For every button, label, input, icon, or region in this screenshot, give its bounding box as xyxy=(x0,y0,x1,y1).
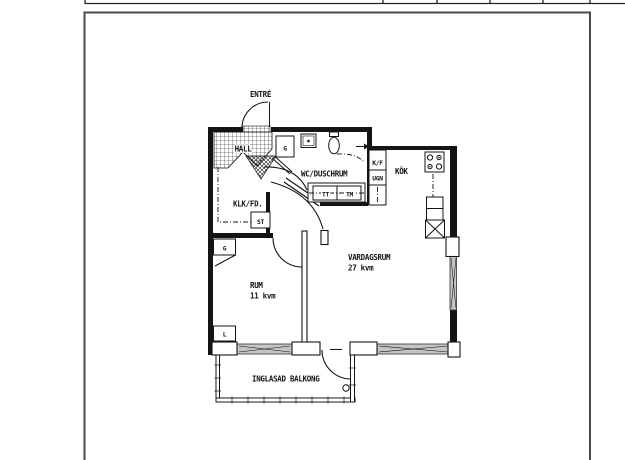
title-block-edge xyxy=(85,0,625,4)
klk-boundary-line xyxy=(218,167,251,222)
kitchen-cabinets xyxy=(426,174,445,238)
label-cleaning-closet: ST xyxy=(257,219,264,226)
balcony-drain-icon xyxy=(343,385,349,391)
wall-pier xyxy=(292,342,320,355)
label-linen-closet: L xyxy=(223,332,227,339)
label-wc: WC/DUSCHRUM xyxy=(301,170,348,179)
label-entre: ENTRÉ xyxy=(250,90,272,99)
closet-hall xyxy=(272,136,294,174)
corner-pier xyxy=(448,342,460,357)
label-vardagsrum-area: 27 kvm xyxy=(348,264,374,273)
laundry-counter xyxy=(308,183,365,202)
entry-door-arc xyxy=(242,102,268,128)
entry-threshold xyxy=(243,126,270,132)
partition-wall xyxy=(302,231,307,343)
floor-plan-svg: ENTRÉ HALL WC/DUSCHRUM KÖK KLK/FD. RUM 1… xyxy=(0,0,625,460)
label-vardagsrum: VARDAGSRUM xyxy=(348,253,391,262)
exterior-walls xyxy=(208,127,457,355)
label-kok: KÖK xyxy=(395,167,408,176)
label-oven: UGN xyxy=(372,176,383,183)
closet-rum xyxy=(214,239,236,266)
label-balkong: INGLASAD BALKONG xyxy=(252,375,320,384)
wall-pier xyxy=(446,237,459,257)
bedroom-door-arc xyxy=(273,238,302,267)
wall-pier xyxy=(350,342,377,355)
label-washer: TM xyxy=(346,192,353,199)
label-hall: HALL xyxy=(235,145,253,154)
washbasin-icon xyxy=(301,134,316,148)
wall-stub xyxy=(321,231,328,245)
stove-icon xyxy=(425,152,444,172)
toilet-icon xyxy=(329,132,340,154)
label-rum-area: 11 kvm xyxy=(250,292,276,301)
label-rum: RUM xyxy=(250,281,263,290)
label-closet-rum: G xyxy=(223,246,227,253)
drawing-sheet: ENTRÉ HALL WC/DUSCHRUM KÖK KLK/FD. RUM 1… xyxy=(0,0,625,460)
window-east xyxy=(446,237,459,310)
balcony-door-arc xyxy=(322,350,351,379)
label-dryer: TT xyxy=(322,192,329,199)
label-klk: KLK/FD. xyxy=(233,200,263,209)
label-fridge-freezer: K/F xyxy=(372,160,383,167)
wall-pier xyxy=(212,342,237,355)
label-closet-hall: G xyxy=(283,146,287,153)
wc-swing-line xyxy=(337,154,364,162)
sheet-frame xyxy=(85,13,591,460)
